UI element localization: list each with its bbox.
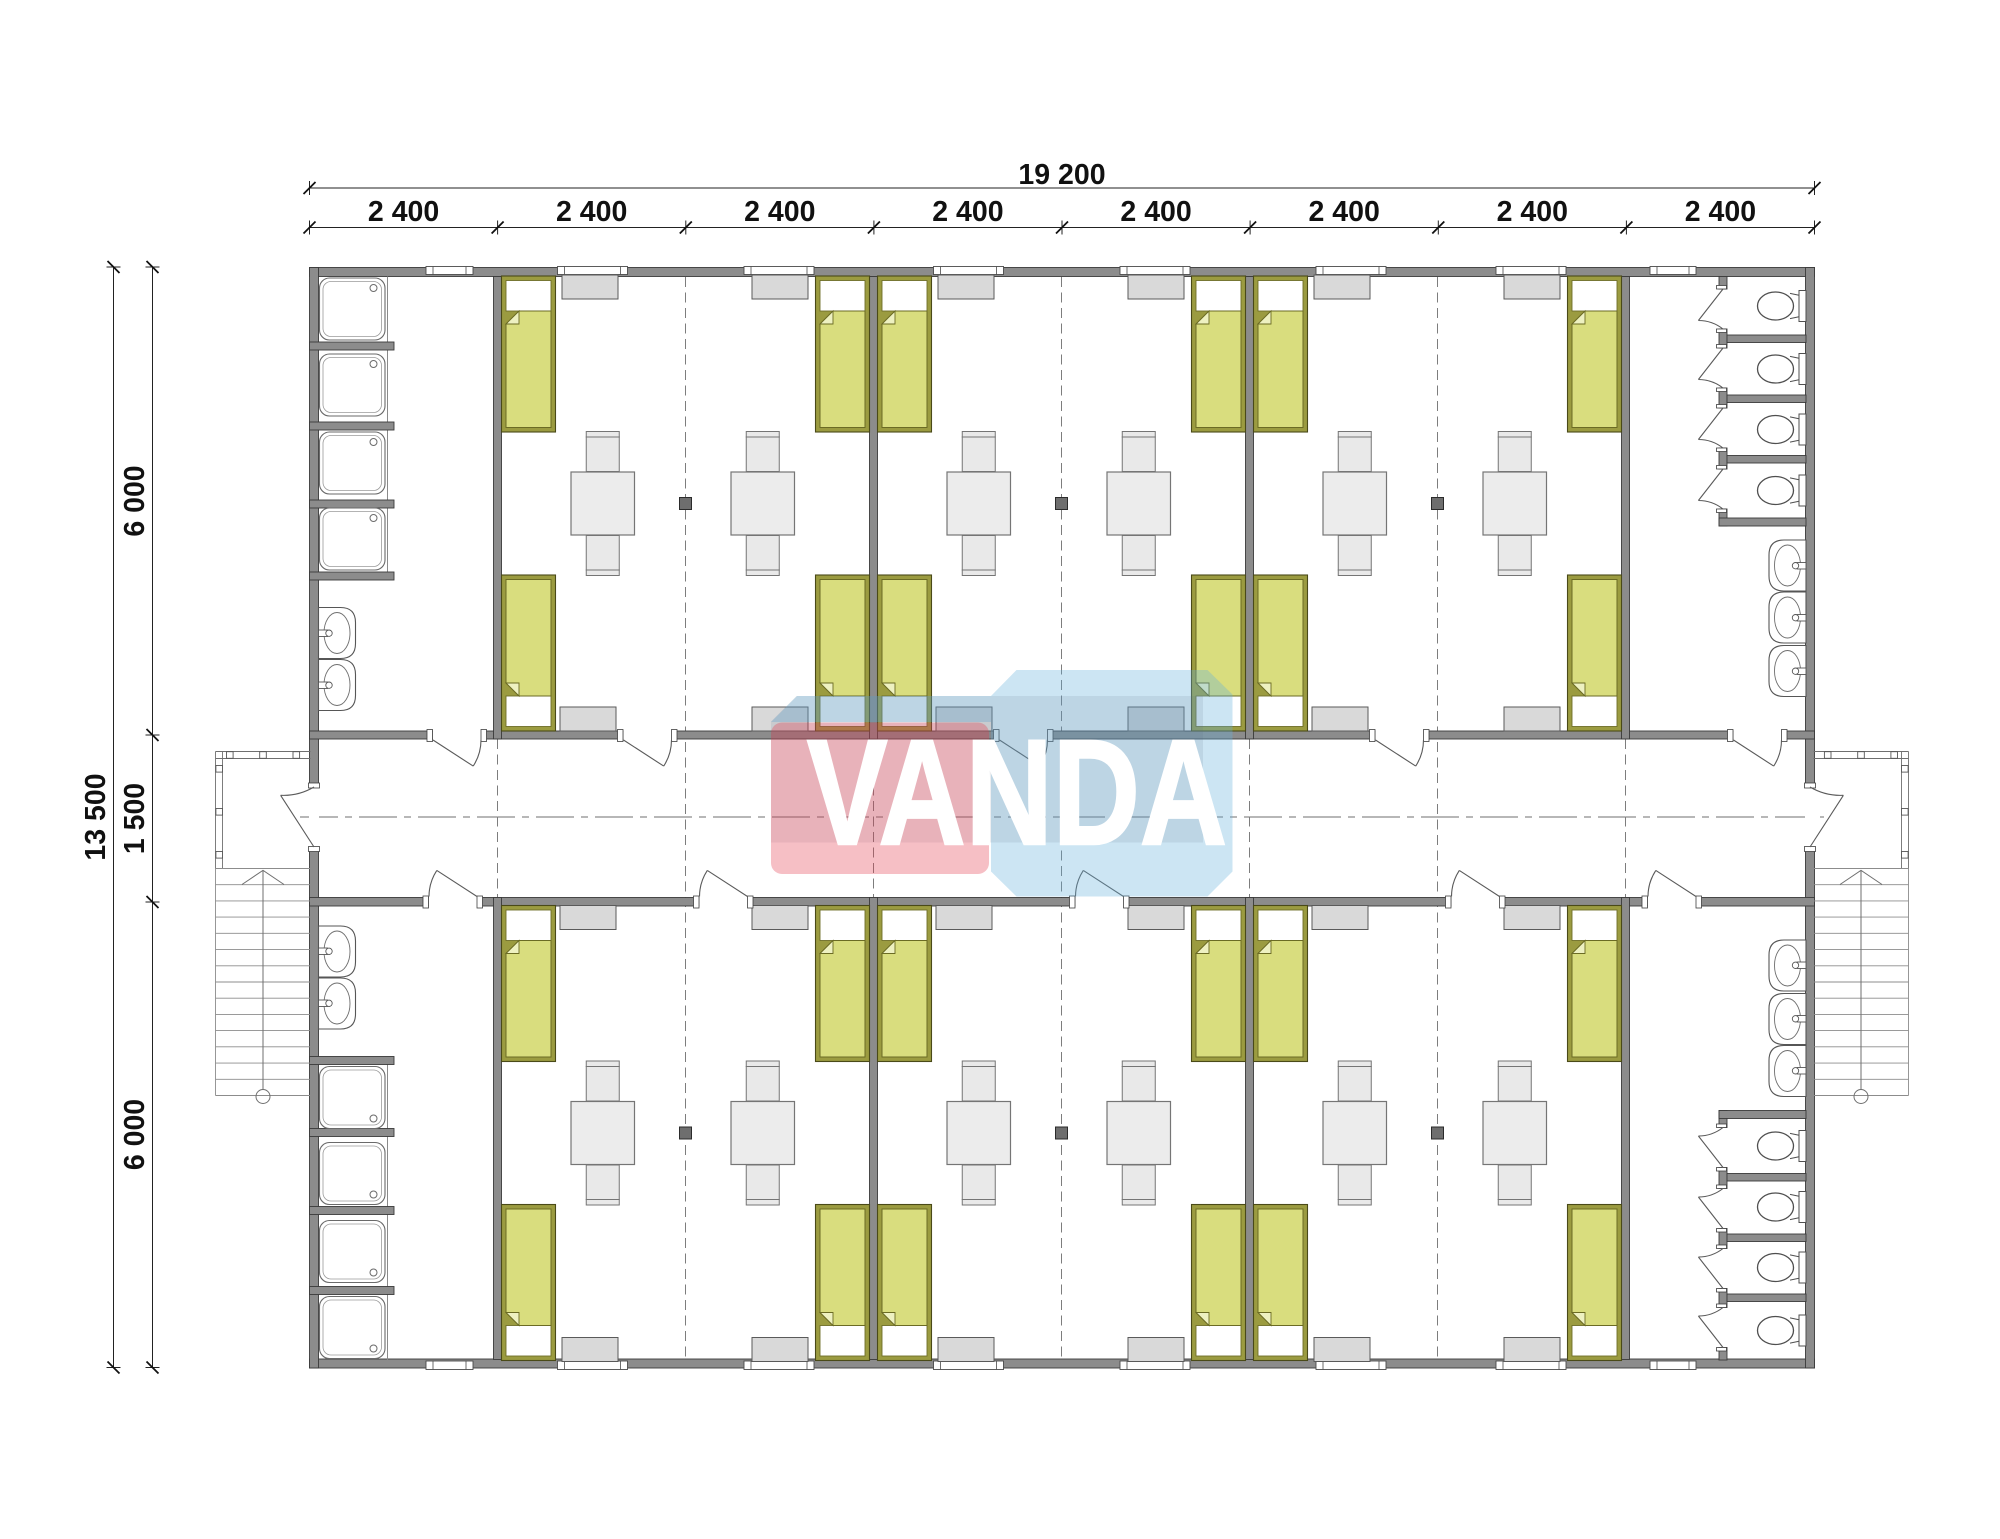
svg-text:VANDA: VANDA [807, 708, 1227, 876]
svg-text:2 400: 2 400 [1120, 196, 1191, 228]
svg-text:2 400: 2 400 [744, 196, 815, 228]
svg-text:2 400: 2 400 [368, 196, 439, 228]
svg-text:2 400: 2 400 [1685, 196, 1756, 228]
svg-text:19 200: 19 200 [1018, 159, 1105, 191]
svg-text:2 400: 2 400 [1309, 196, 1380, 228]
svg-text:2 400: 2 400 [932, 196, 1003, 228]
svg-text:2 400: 2 400 [1497, 196, 1568, 228]
svg-text:6 000: 6 000 [119, 465, 151, 536]
svg-text:1 500: 1 500 [119, 783, 151, 854]
svg-text:2 400: 2 400 [556, 196, 627, 228]
svg-text:13 500: 13 500 [80, 773, 112, 860]
svg-text:6 000: 6 000 [119, 1099, 151, 1170]
